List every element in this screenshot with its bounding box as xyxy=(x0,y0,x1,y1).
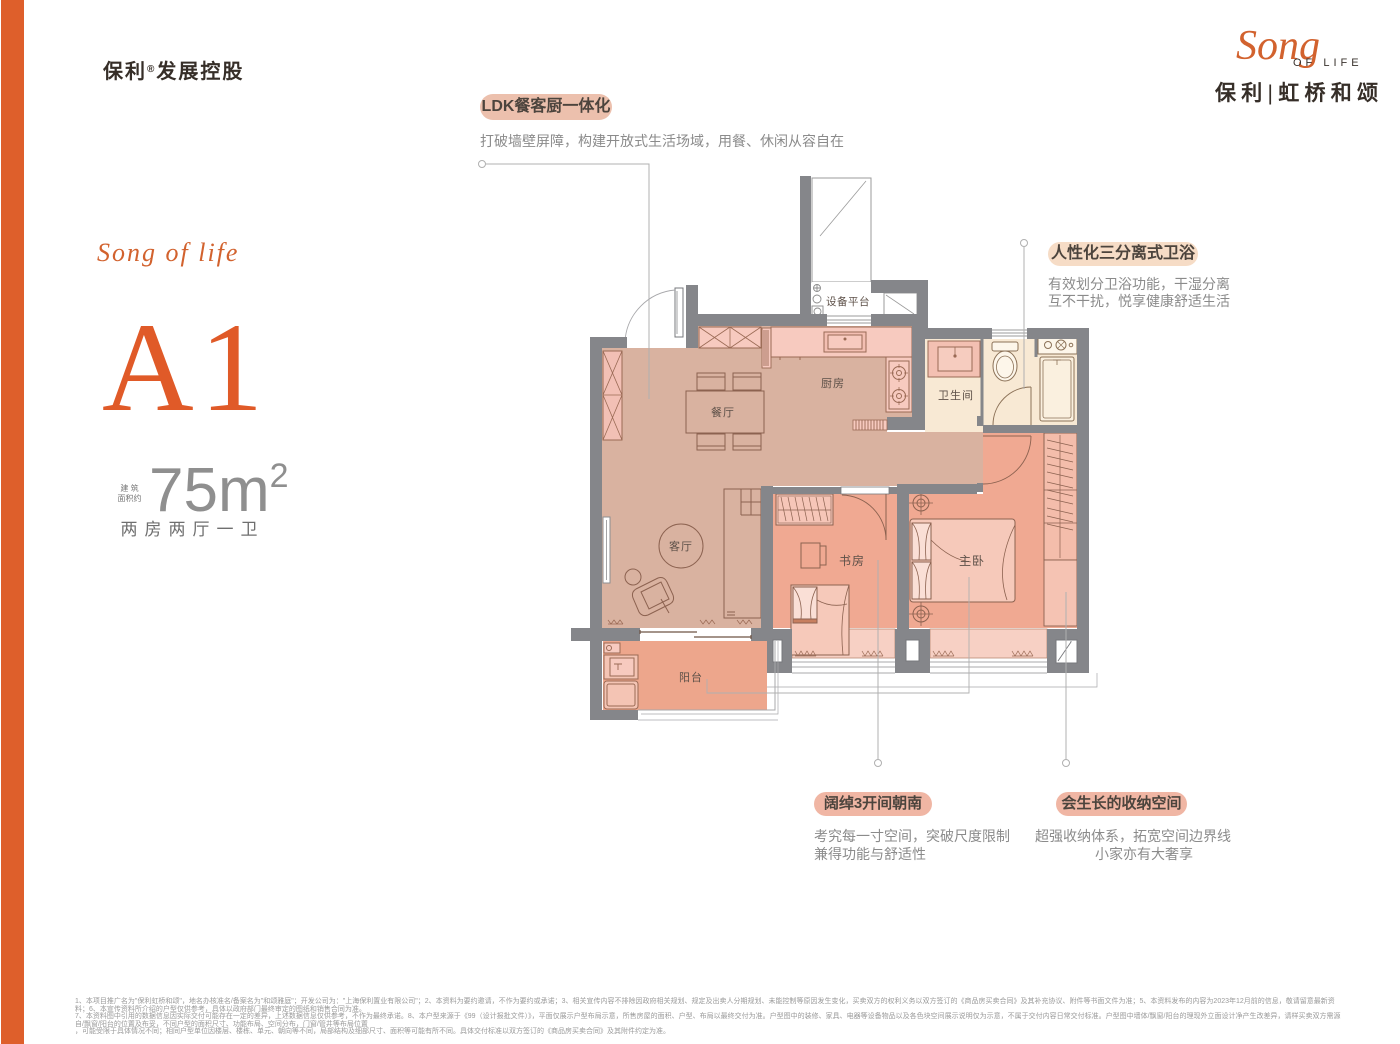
svg-text:客厅: 客厅 xyxy=(669,539,693,553)
svg-text:卫生间: 卫生间 xyxy=(938,388,974,402)
svg-text:主卧: 主卧 xyxy=(959,554,985,568)
svg-text:书房: 书房 xyxy=(839,553,865,568)
svg-text:设备平台: 设备平台 xyxy=(826,295,870,308)
svg-text:餐厅: 餐厅 xyxy=(711,405,735,419)
svg-text:厨房: 厨房 xyxy=(821,377,845,390)
svg-text:阳台: 阳台 xyxy=(679,670,703,684)
